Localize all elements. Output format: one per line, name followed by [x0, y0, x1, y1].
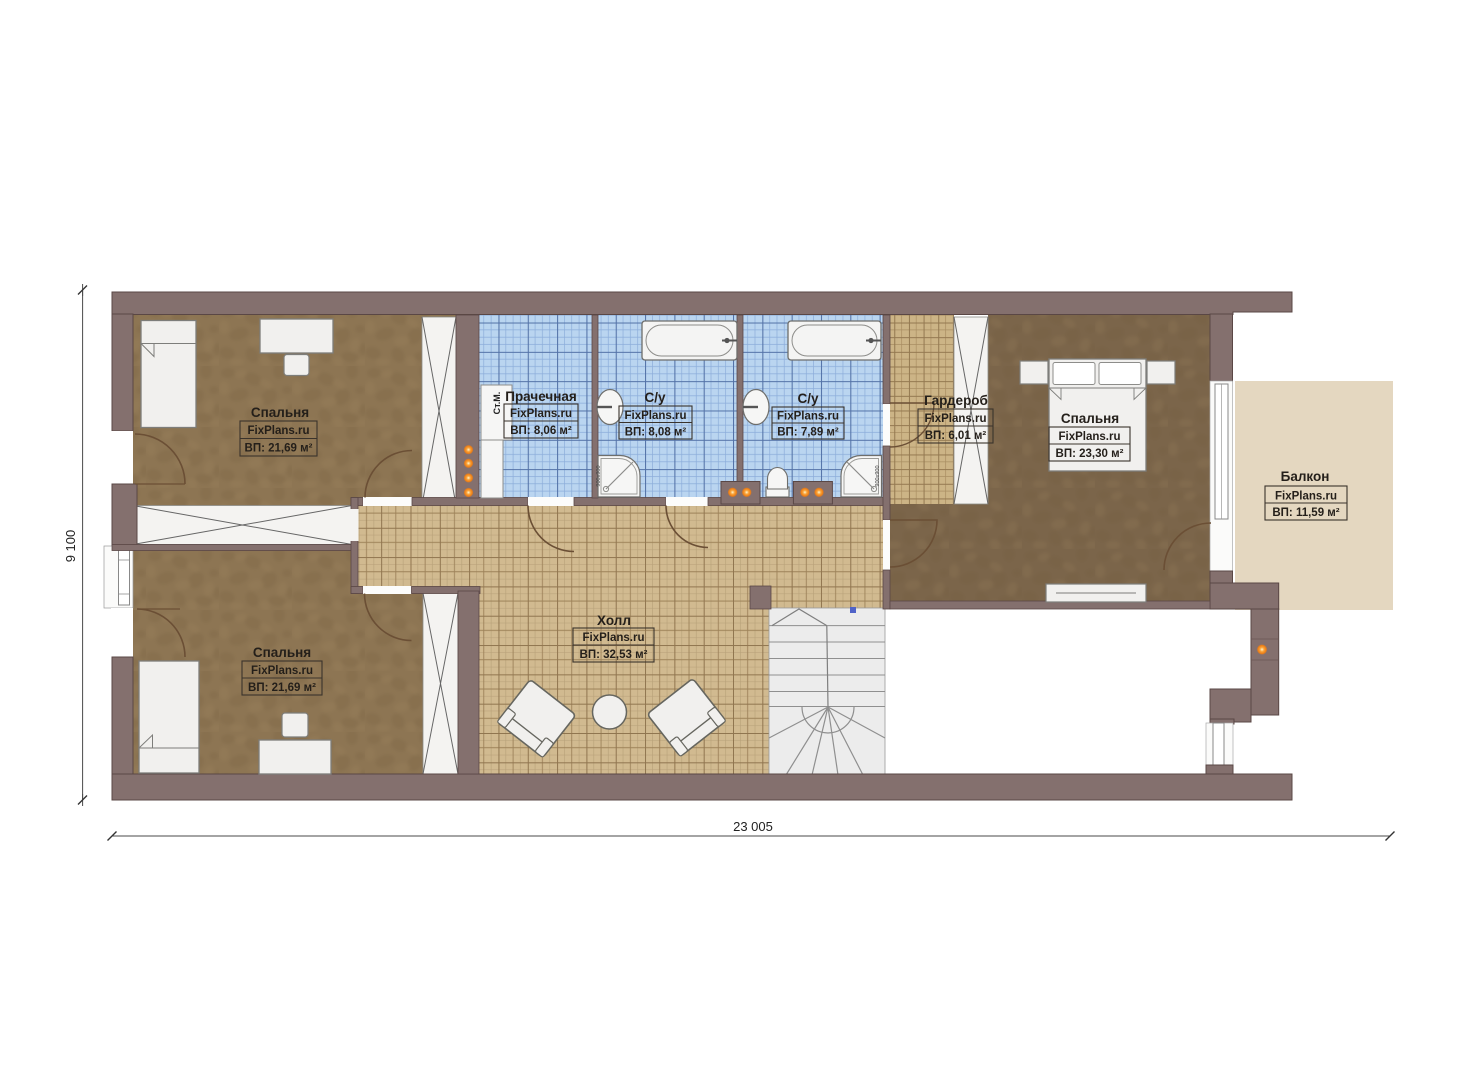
svg-text:ВП: 8,06 м²: ВП: 8,06 м²: [510, 425, 572, 437]
svg-text:FixPlans.ru: FixPlans.ru: [625, 410, 687, 422]
svg-text:FixPlans.ru: FixPlans.ru: [777, 411, 839, 423]
svg-text:ВП: 32,53 м²: ВП: 32,53 м²: [580, 649, 648, 661]
svg-text:23 005: 23 005: [733, 819, 773, 834]
svg-text:FixPlans.ru: FixPlans.ru: [248, 425, 310, 437]
svg-text:Ст.М.: Ст.М.: [492, 392, 502, 415]
svg-text:С/у: С/у: [644, 390, 666, 405]
svg-text:Гардероб: Гардероб: [924, 393, 988, 408]
svg-text:900х900: 900х900: [596, 465, 602, 486]
svg-text:ВП: 7,89 м²: ВП: 7,89 м²: [777, 427, 839, 439]
svg-text:Балкон: Балкон: [1281, 469, 1330, 484]
svg-text:FixPlans.ru: FixPlans.ru: [1059, 431, 1121, 443]
svg-text:FixPlans.ru: FixPlans.ru: [510, 408, 572, 420]
svg-text:ВП: 6,01 м²: ВП: 6,01 м²: [925, 430, 987, 442]
svg-text:Спальня: Спальня: [1061, 411, 1119, 426]
svg-text:FixPlans.ru: FixPlans.ru: [1275, 491, 1337, 503]
svg-text:Спальня: Спальня: [253, 645, 311, 660]
svg-text:900х900: 900х900: [875, 465, 881, 486]
svg-text:ВП: 21,69 м²: ВП: 21,69 м²: [245, 443, 313, 455]
svg-text:ВП: 8,08 м²: ВП: 8,08 м²: [625, 427, 687, 439]
svg-text:ВП: 11,59 м²: ВП: 11,59 м²: [1272, 507, 1339, 519]
svg-text:FixPlans.ru: FixPlans.ru: [583, 632, 645, 644]
svg-text:Спальня: Спальня: [251, 405, 309, 420]
svg-text:FixPlans.ru: FixPlans.ru: [925, 413, 987, 425]
svg-text:С/у: С/у: [797, 391, 819, 406]
svg-text:ВП: 23,30 м²: ВП: 23,30 м²: [1056, 448, 1124, 460]
svg-text:Прачечная: Прачечная: [505, 389, 577, 404]
svg-text:9 100: 9 100: [63, 530, 78, 563]
svg-text:FixPlans.ru: FixPlans.ru: [251, 665, 313, 677]
svg-text:ВП: 21,69 м²: ВП: 21,69 м²: [248, 682, 316, 694]
svg-text:Холл: Холл: [597, 613, 631, 628]
